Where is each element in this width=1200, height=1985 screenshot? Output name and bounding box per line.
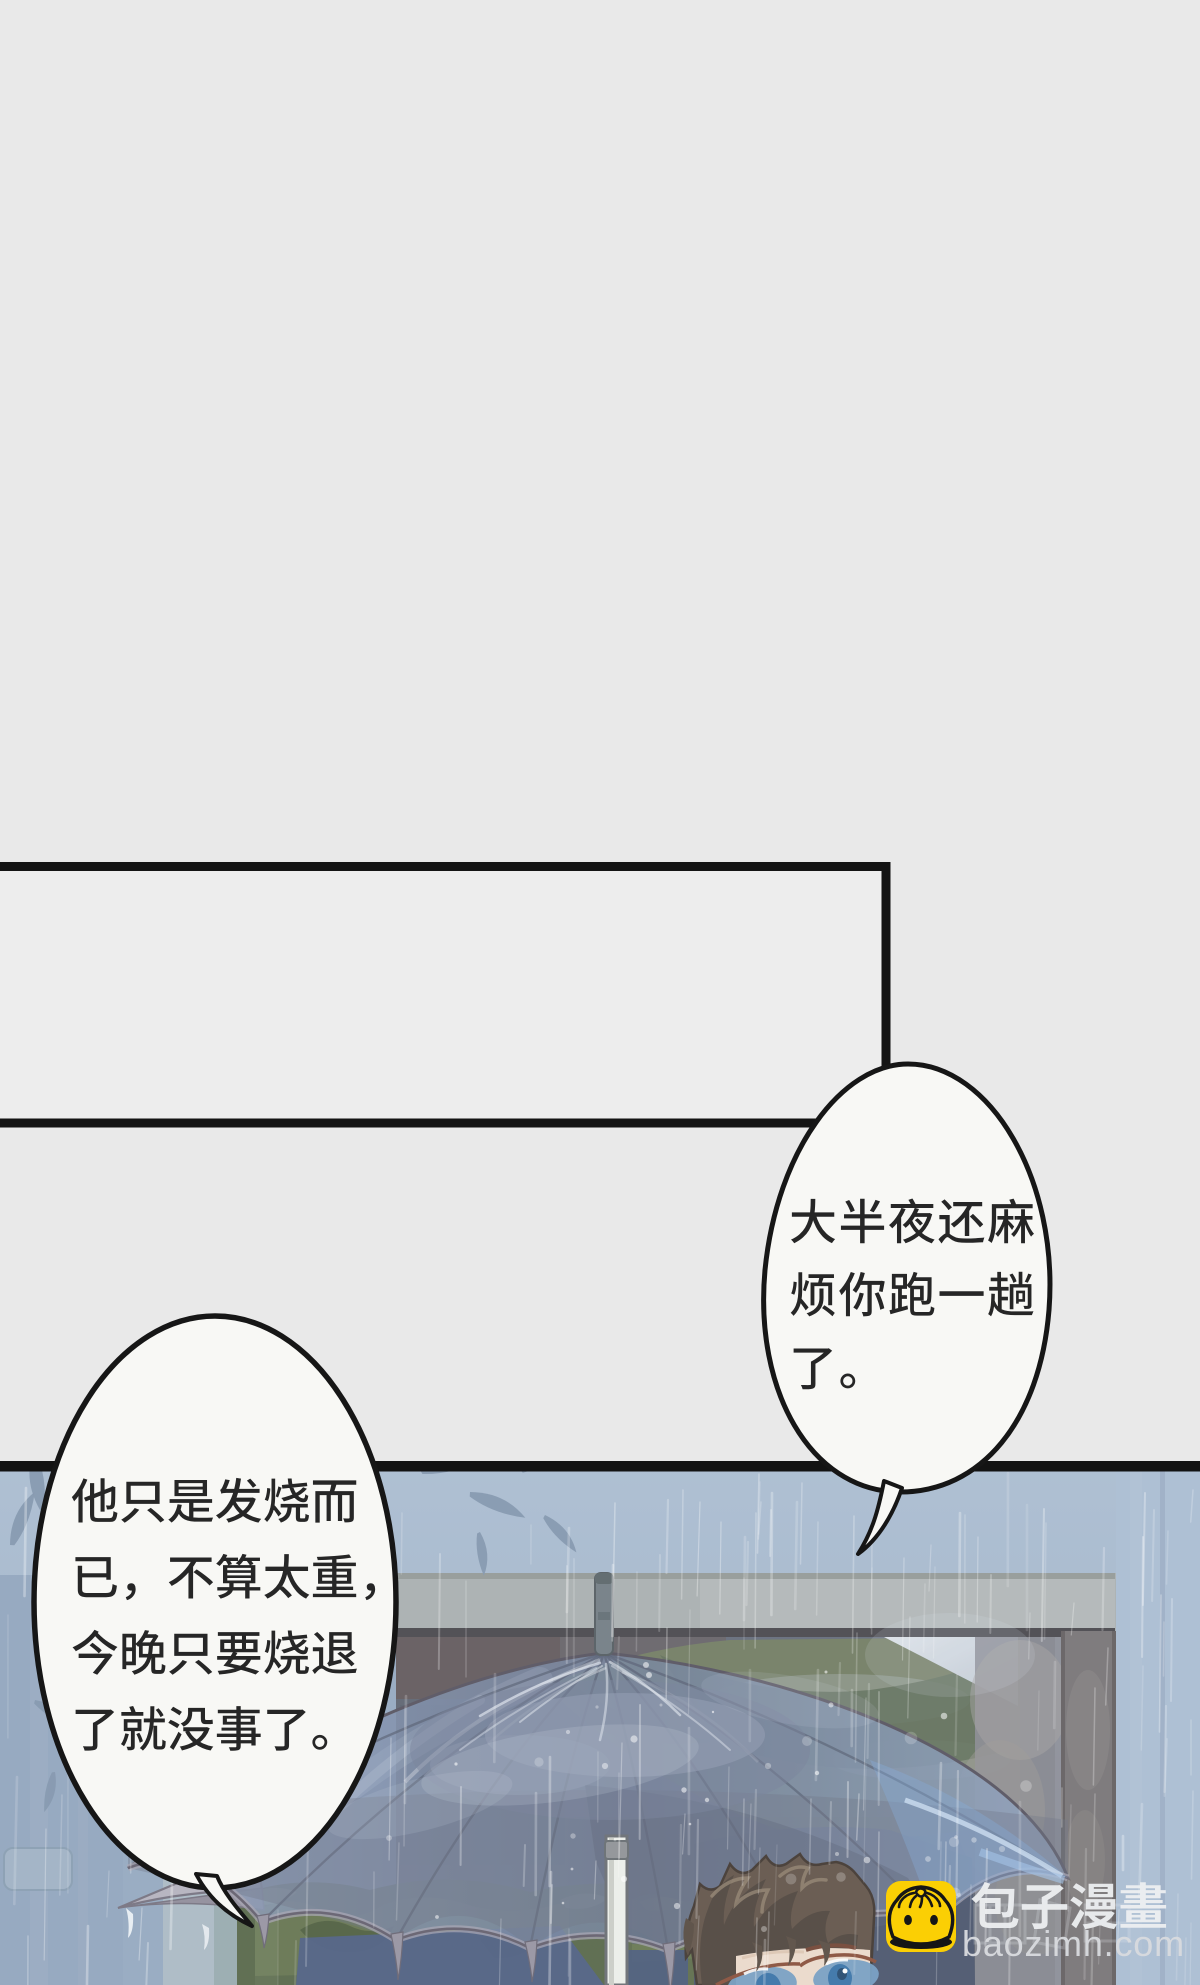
svg-text:baozimh.com: baozimh.com [962,1923,1185,1964]
